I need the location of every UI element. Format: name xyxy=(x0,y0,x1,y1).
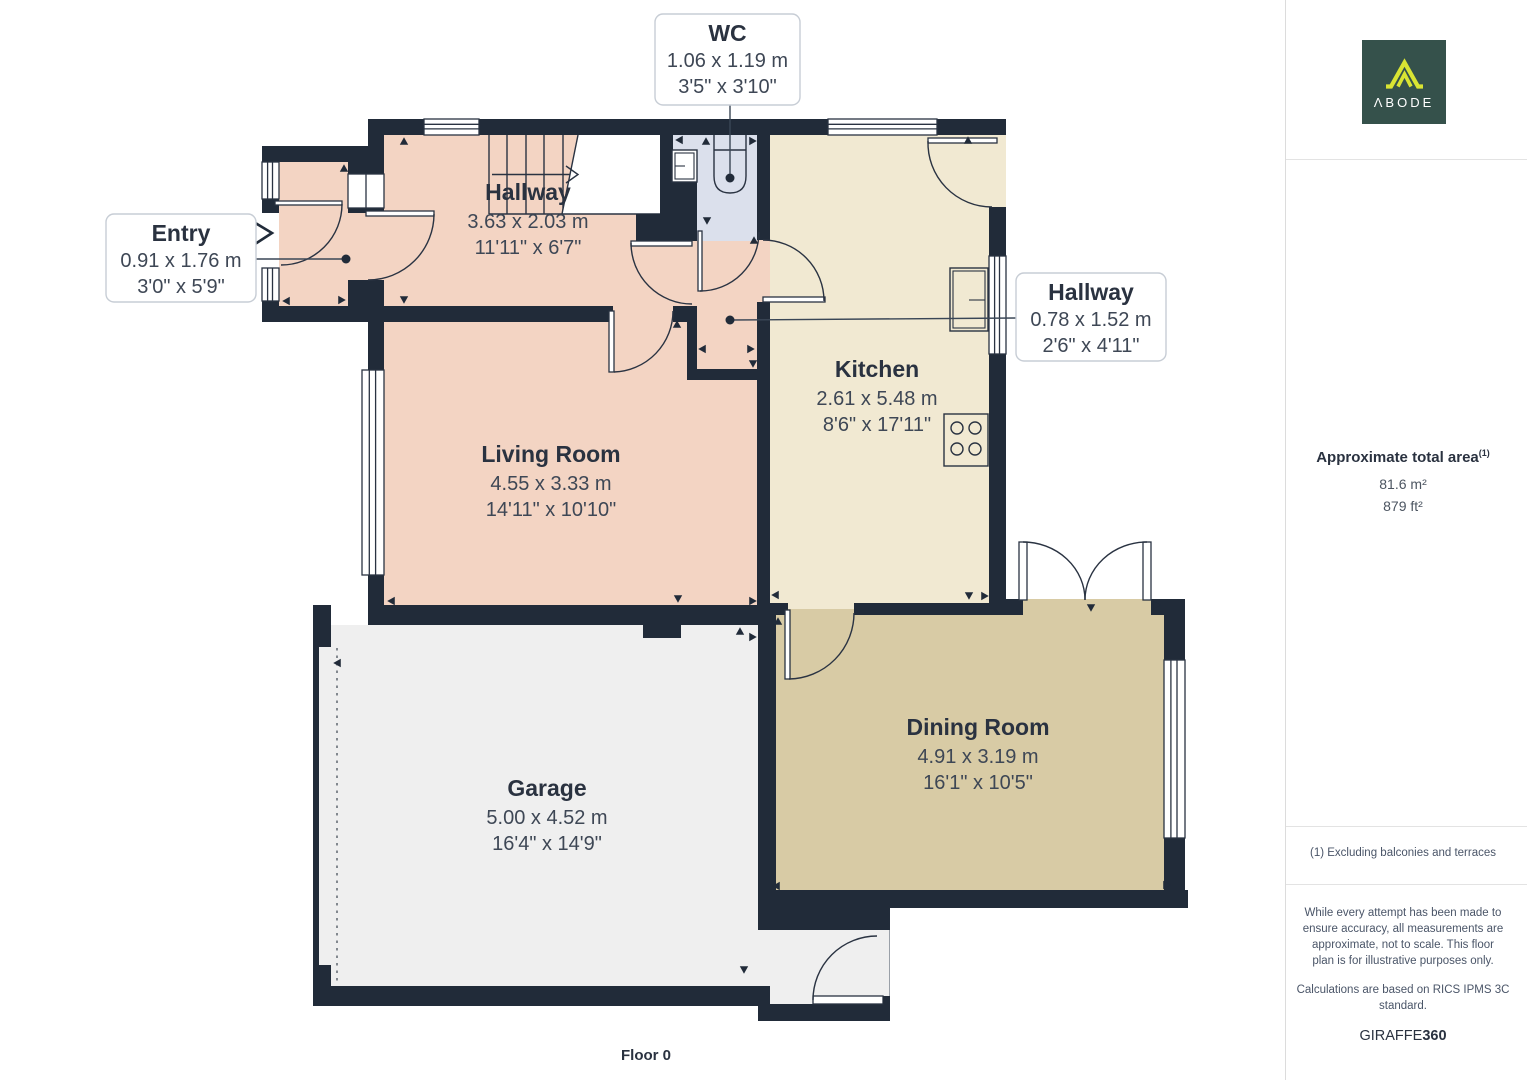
svg-text:ΛBODE: ΛBODE xyxy=(1374,95,1435,110)
svg-text:Living Room: Living Room xyxy=(481,441,620,467)
svg-text:8'6" x 17'11": 8'6" x 17'11" xyxy=(823,414,931,436)
svg-text:4.91 x 3.19 m: 4.91 x 3.19 m xyxy=(917,746,1038,768)
svg-text:3'0" x 5'9": 3'0" x 5'9" xyxy=(137,276,224,298)
svg-text:11'11" x 6'7": 11'11" x 6'7" xyxy=(475,237,582,259)
svg-text:16'4" x 14'9": 16'4" x 14'9" xyxy=(492,833,602,855)
svg-text:Hallway: Hallway xyxy=(485,179,571,205)
svg-text:14'11" x 10'10": 14'11" x 10'10" xyxy=(486,499,616,521)
svg-text:3.63 x 2.03 m: 3.63 x 2.03 m xyxy=(467,211,588,233)
svg-text:Kitchen: Kitchen xyxy=(835,356,919,382)
svg-text:2.61 x 5.48 m: 2.61 x 5.48 m xyxy=(816,388,937,410)
svg-text:16'1" x 10'5": 16'1" x 10'5" xyxy=(923,772,1033,794)
svg-text:Hallway: Hallway xyxy=(1048,279,1134,305)
svg-text:WC: WC xyxy=(708,20,746,46)
svg-text:Floor 0: Floor 0 xyxy=(621,1047,671,1064)
svg-text:1.06 x 1.19 m: 1.06 x 1.19 m xyxy=(667,50,788,72)
svg-text:0.78 x 1.52 m: 0.78 x 1.52 m xyxy=(1030,309,1151,331)
svg-text:4.55 x 3.33 m: 4.55 x 3.33 m xyxy=(490,473,611,495)
svg-text:2'6" x 4'11": 2'6" x 4'11" xyxy=(1042,335,1139,357)
svg-text:3'5" x 3'10": 3'5" x 3'10" xyxy=(678,76,777,98)
svg-text:Entry: Entry xyxy=(152,220,211,246)
svg-text:5.00 x 4.52 m: 5.00 x 4.52 m xyxy=(486,807,607,829)
svg-text:0.91 x 1.76 m: 0.91 x 1.76 m xyxy=(120,250,241,272)
svg-text:Dining Room: Dining Room xyxy=(906,714,1049,740)
svg-text:Garage: Garage xyxy=(507,775,586,801)
